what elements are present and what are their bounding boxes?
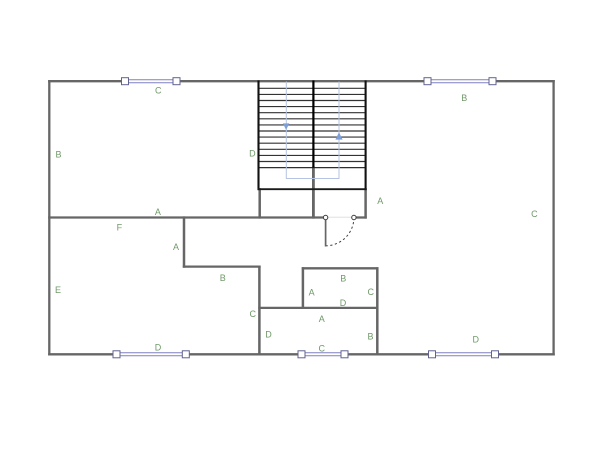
svg-text:D: D: [340, 298, 347, 308]
svg-text:C: C: [155, 86, 162, 96]
svg-text:C: C: [531, 209, 538, 219]
svg-text:A: A: [173, 242, 179, 252]
svg-text:C: C: [367, 287, 374, 297]
svg-text:A: A: [309, 288, 315, 298]
svg-text:C: C: [318, 344, 325, 354]
svg-text:D: D: [249, 148, 256, 158]
svg-text:A: A: [319, 314, 325, 324]
svg-text:F: F: [117, 223, 123, 233]
svg-text:D: D: [473, 335, 480, 345]
svg-text:B: B: [220, 273, 226, 283]
svg-text:A: A: [377, 196, 383, 206]
svg-text:E: E: [55, 285, 61, 295]
svg-text:B: B: [461, 93, 467, 103]
svg-text:B: B: [55, 150, 61, 160]
svg-text:B: B: [340, 274, 346, 284]
svg-text:C: C: [250, 309, 257, 319]
svg-text:D: D: [265, 330, 272, 340]
svg-text:D: D: [155, 343, 162, 353]
svg-text:B: B: [367, 332, 373, 342]
svg-text:A: A: [155, 207, 161, 217]
